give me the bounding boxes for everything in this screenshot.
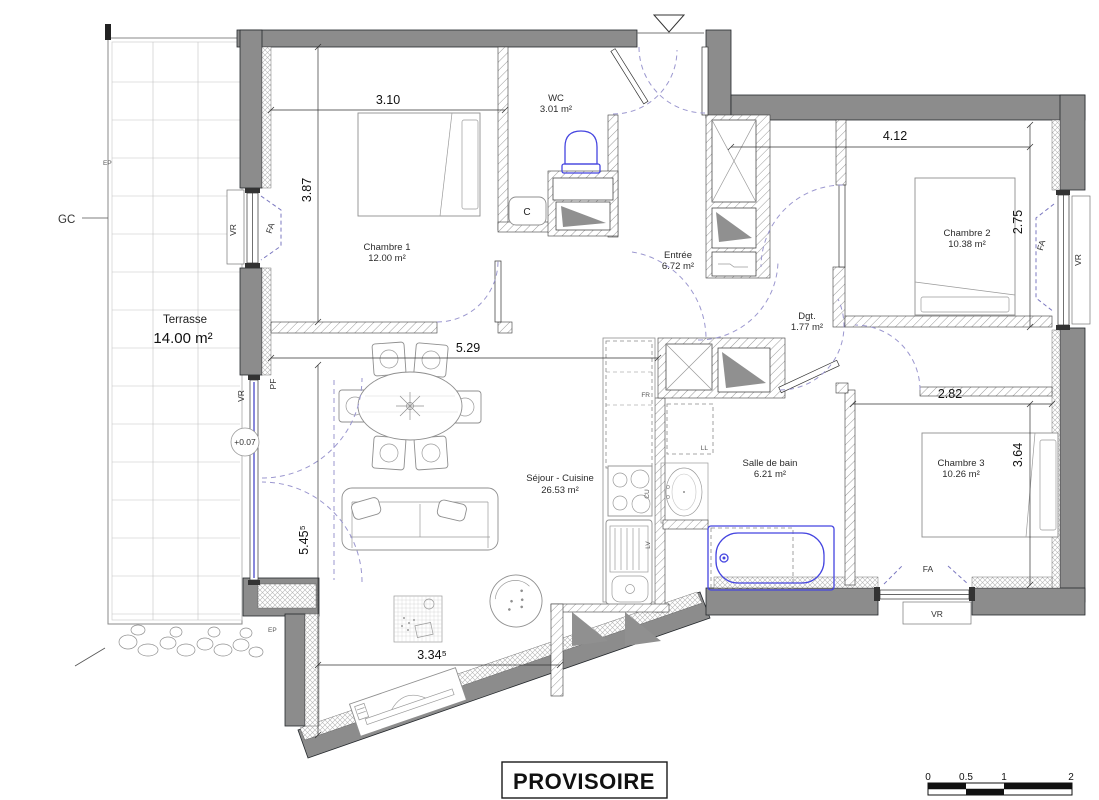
shutter-label: VR [931, 609, 943, 619]
scale-tick-05: 0.5 [959, 772, 973, 783]
toilet-icon [562, 131, 600, 173]
dgt-name: Dgt. [798, 311, 815, 322]
floor-plan: Terrasse 14.00 m² GC EP EP [0, 0, 1099, 800]
terrace-area: 14.00 m² [153, 330, 212, 347]
bed-chambre3 [922, 433, 1058, 537]
hall-closet [658, 338, 785, 398]
table-centerpiece-icon [396, 392, 424, 420]
sejour-area: 26.53 m² [541, 485, 579, 496]
window-chambre2: VR FA [1035, 190, 1090, 330]
entree-name: Entrée [664, 250, 692, 261]
ep-label-top: EP [103, 160, 112, 167]
gc-callout: GC [58, 214, 108, 226]
chambre2-door-leaf [839, 185, 845, 267]
wc-name: WC [548, 93, 564, 104]
dim-ch3-width: 2.82 [938, 387, 962, 401]
chambre1-name: Chambre 1 [364, 242, 411, 253]
dgt-area: 1.77 m² [791, 322, 823, 333]
shutter-label: VR [1073, 254, 1083, 266]
level-marker: +0.07 [231, 428, 259, 456]
dim-ch1-width: 3.10 [376, 93, 400, 107]
sejour-name: Séjour - Cuisine [526, 473, 594, 484]
chambre3-door-arc [855, 325, 920, 390]
bathroom-fixtures: LL [661, 404, 834, 590]
sofa-icon [342, 488, 498, 550]
entry-closet [706, 115, 770, 278]
dim-ch3-depth: 3.64 [1011, 443, 1025, 467]
water-heater-label: C [523, 207, 530, 218]
scale-tick-1: 1 [1001, 772, 1007, 783]
wc-fixtures: C [509, 131, 618, 236]
shutter-label: VR [228, 224, 238, 236]
washbasin-icon [661, 463, 708, 529]
armchair-icon [480, 565, 551, 636]
stamp-text: PROVISOIRE [513, 769, 655, 794]
rug-icon [394, 596, 442, 642]
chambre3-area: 10.26 m² [942, 469, 980, 480]
fridge-label: FR [641, 392, 650, 399]
dim-sejour-bottom: 3.34⁵ [417, 648, 447, 662]
dim-ch2-depth: 2.75 [1011, 210, 1025, 234]
cooktop-icon: CU [608, 466, 652, 516]
shutter-label: VR [236, 390, 246, 402]
window-label: FA [1035, 239, 1047, 252]
scale-bar: 0 0.5 1 2 [925, 772, 1074, 795]
dim-sejour-width: 5.29 [456, 341, 480, 355]
dim-ch1-depth: 3.87 [300, 178, 314, 202]
gc-label: GC [58, 214, 75, 226]
dining-set [339, 342, 481, 470]
french-window-label: PF [268, 379, 278, 390]
kitchen: FR CU LV [603, 338, 655, 604]
terrace-stones [119, 625, 263, 657]
terrace-post [105, 24, 111, 40]
scale-tick-2: 2 [1068, 772, 1074, 783]
scale-tick-0: 0 [925, 772, 931, 783]
sink-icon: LV [606, 520, 652, 604]
window-label: FA [923, 564, 934, 574]
ep-label-bottom: EP [268, 627, 277, 634]
entrance-door-leaf [702, 47, 708, 115]
washing-machine-label: LL [701, 445, 709, 452]
chambre2-name: Chambre 2 [944, 228, 991, 239]
chambre1-door-leaf [495, 261, 501, 322]
chambre1-area: 12.00 m² [368, 253, 406, 264]
sink-label: LV [645, 541, 652, 549]
stamp: PROVISOIRE [502, 762, 667, 798]
dim-ch2-width: 4.12 [883, 129, 907, 143]
entree-area: 6.72 m² [662, 261, 694, 272]
chambre3-name: Chambre 3 [938, 458, 985, 469]
chambre2-area: 10.38 m² [948, 239, 986, 250]
window-label: FA [264, 221, 277, 234]
sdb-area: 6.21 m² [754, 469, 786, 480]
window-chambre3: VR FA [874, 564, 975, 624]
terrace-name: Terrasse [163, 314, 207, 326]
wc-door-leaf [611, 49, 648, 104]
wc-area: 3.01 m² [540, 104, 572, 115]
tv-console-icon [350, 668, 467, 737]
dim-sejour-depth: 5.45⁵ [297, 525, 311, 555]
sdb-name: Salle de bain [743, 458, 798, 469]
cooktop-label: CU [644, 489, 651, 499]
level-value: +0.07 [234, 437, 256, 447]
window-chambre1: VR FA [227, 188, 281, 268]
bed-chambre1 [358, 113, 480, 216]
water-heater-icon: C [509, 197, 546, 225]
entrance-marker-icon [654, 15, 684, 32]
terrace: Terrasse 14.00 m² [75, 24, 263, 666]
